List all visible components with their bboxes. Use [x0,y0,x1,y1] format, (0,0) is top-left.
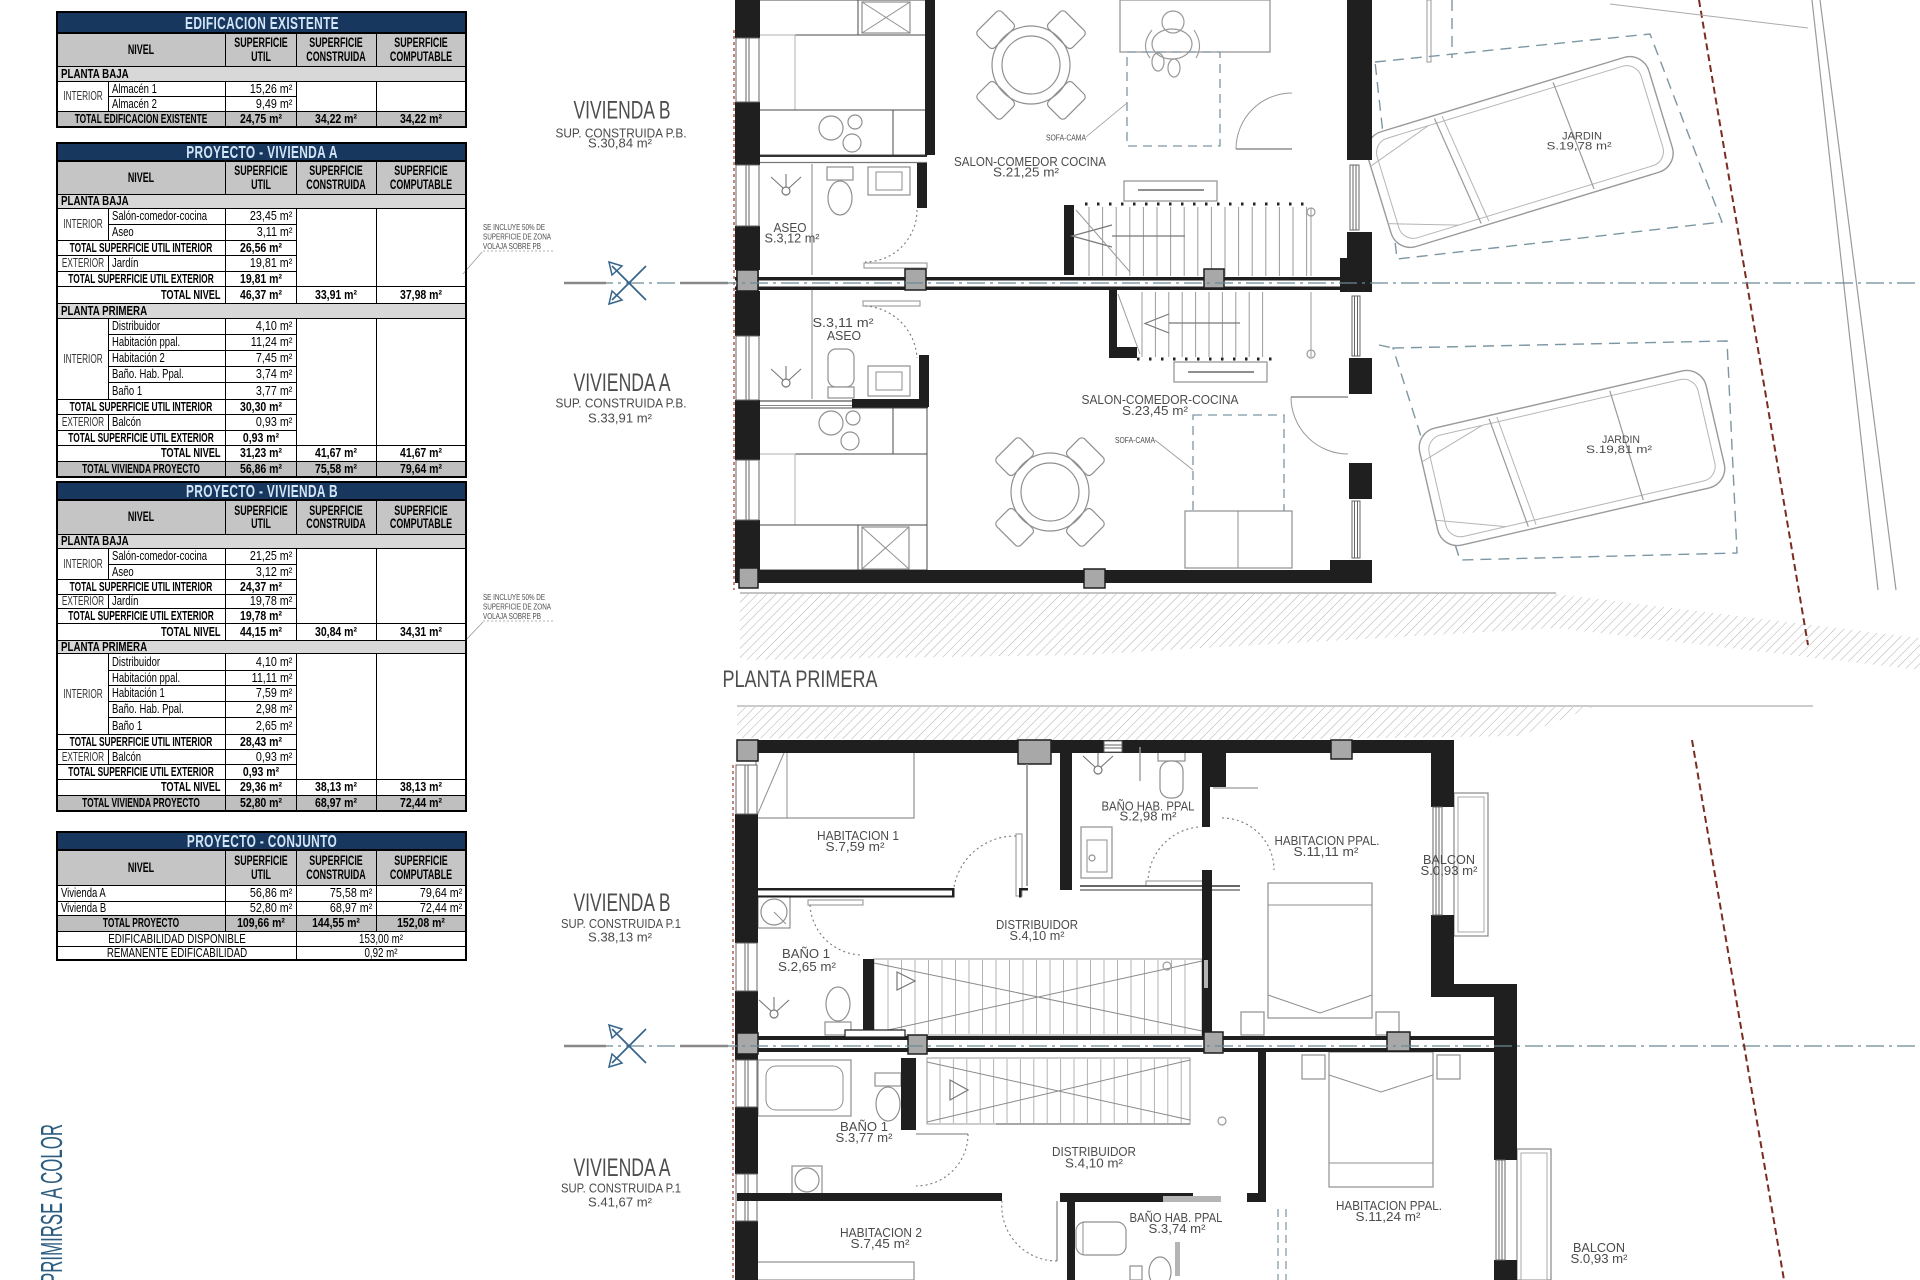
svg-text:VOLAJA SOBRE PB: VOLAJA SOBRE PB [483,611,541,621]
svg-text:S.3,12 m²: S.3,12 m² [765,232,820,246]
svg-text:S.30,84 m²: S.30,84 m² [588,137,652,151]
svg-text:VOLAJA SOBRE PB: VOLAJA SOBRE PB [483,241,541,251]
svg-text:S.0,93 m²: S.0,93 m² [1421,864,1478,878]
svg-text:S.19,81 m²: S.19,81 m² [1586,444,1652,456]
svg-text:SUP. CONSTRUIDA P.B.: SUP. CONSTRUIDA P.B. [556,397,687,411]
svg-text:SOFA-CAMA: SOFA-CAMA [1115,436,1156,445]
svg-text:S.21,25 m²: S.21,25 m² [993,166,1059,180]
svg-text:PRIMIRSE A COLOR: PRIMIRSE A COLOR [34,1124,69,1280]
svg-text:S.3,77 m²: S.3,77 m² [836,1131,893,1145]
svg-text:S.2,98 m²: S.2,98 m² [1120,810,1177,824]
svg-text:SE INCLUYE 50% DE: SE INCLUYE 50% DE [483,592,545,602]
svg-text:S.7,59 m²: S.7,59 m² [826,840,885,854]
svg-text:VIVIENDA B: VIVIENDA B [574,889,671,917]
svg-text:S.3,74 m²: S.3,74 m² [1149,1222,1206,1236]
svg-text:S.41,67 m²: S.41,67 m² [588,1196,652,1210]
svg-text:S.4,10 m²: S.4,10 m² [1010,929,1065,943]
svg-text:SUPERFICIE DE ZONA: SUPERFICIE DE ZONA [483,232,551,242]
svg-text:S.0,93 m²: S.0,93 m² [1571,1252,1628,1266]
svg-text:SUPERFICIE DE ZONA: SUPERFICIE DE ZONA [483,602,551,612]
svg-text:S.38,13 m²: S.38,13 m² [588,931,652,945]
svg-text:SUP. CONSTRUIDA P.1: SUP. CONSTRUIDA P.1 [561,917,681,931]
svg-text:S.3,11 m²: S.3,11 m² [813,316,874,330]
svg-text:PLANTA PRIMERA: PLANTA PRIMERA [723,666,878,693]
svg-text:SE INCLUYE 50% DE: SE INCLUYE 50% DE [483,222,545,232]
svg-text:S.23,45 m²: S.23,45 m² [1122,404,1188,418]
svg-text:S.19,78 m²: S.19,78 m² [1547,141,1612,153]
svg-text:SOFA-CAMA: SOFA-CAMA [1046,134,1087,143]
svg-text:SUP. CONSTRUIDA P.1: SUP. CONSTRUIDA P.1 [561,1182,681,1196]
svg-text:VIVIENDA A: VIVIENDA A [574,369,671,397]
svg-text:S.33,91 m²: S.33,91 m² [588,412,652,426]
svg-text:VIVIENDA A: VIVIENDA A [574,1154,671,1182]
svg-text:S.4,10 m²: S.4,10 m² [1065,1157,1123,1171]
svg-text:S.11,11 m²: S.11,11 m² [1294,845,1359,859]
svg-text:VIVIENDA B: VIVIENDA B [574,97,671,125]
svg-text:ASEO: ASEO [827,329,861,343]
svg-text:S.7,45 m²: S.7,45 m² [851,1237,910,1251]
svg-text:S.11,24 m²: S.11,24 m² [1356,1210,1421,1224]
svg-text:S.2,65 m²: S.2,65 m² [778,960,836,974]
svg-text:BAÑO 1: BAÑO 1 [782,947,830,961]
